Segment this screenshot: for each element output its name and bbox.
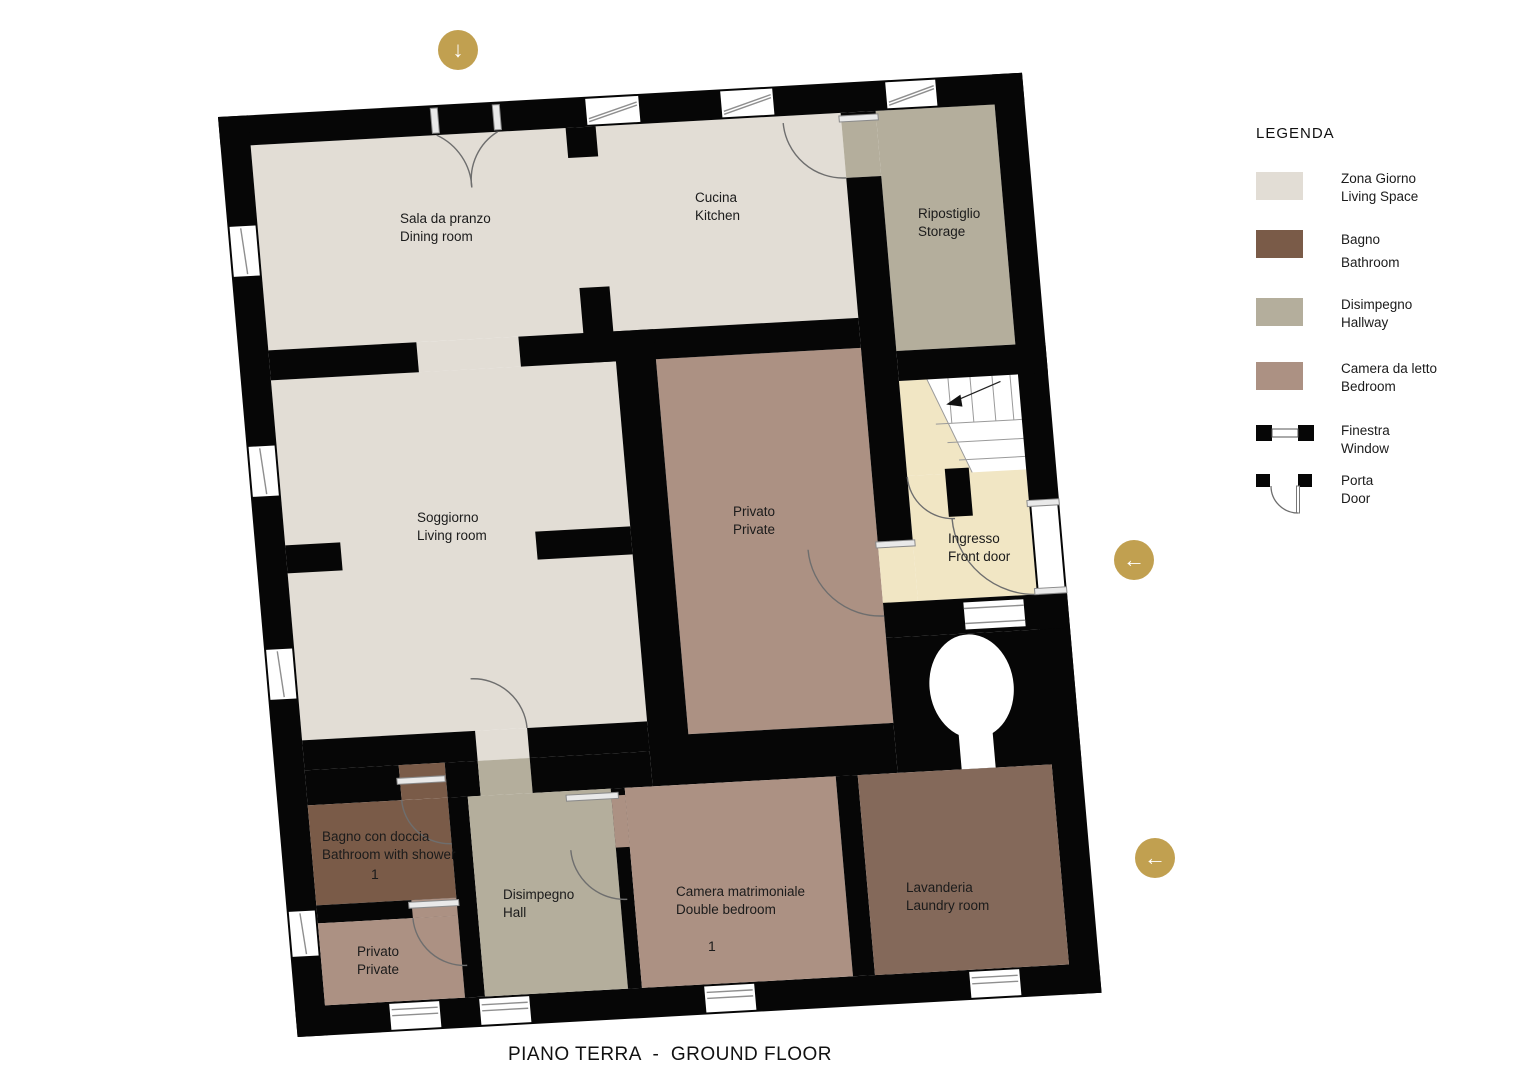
legend-item-door: PortaDoor bbox=[1256, 472, 1506, 521]
plan-title: PIANO TERRA - GROUND FLOOR bbox=[300, 1044, 1040, 1066]
room-label-private-small: PrivatoPrivate bbox=[357, 943, 399, 978]
legend-title: LEGENDA bbox=[1256, 125, 1506, 142]
nav-left-button-upper[interactable]: ← bbox=[1114, 540, 1154, 580]
room-label-living: SoggiornoLiving room bbox=[417, 509, 487, 544]
arrow-left-icon: ← bbox=[1123, 547, 1145, 573]
hallway-swatch bbox=[1256, 298, 1303, 326]
window-symbol-icon bbox=[1256, 424, 1314, 447]
room-dining-kitchen-floor bbox=[251, 113, 859, 350]
legend-item-window: FinestraWindow bbox=[1256, 422, 1506, 458]
room-private-center-floor bbox=[656, 348, 893, 734]
bathroom-count: 1 bbox=[371, 866, 379, 882]
room-label-entrance: IngressoFront door bbox=[948, 530, 1010, 565]
double-bedroom-count: 1 bbox=[708, 938, 716, 954]
room-label-storage: RipostiglioStorage bbox=[918, 205, 980, 240]
arrow-left-icon: ← bbox=[1144, 845, 1166, 871]
room-laundry-floor bbox=[858, 764, 1069, 975]
hall-corridor bbox=[478, 758, 533, 796]
legend-item-bathroom: BagnoBathroom bbox=[1256, 228, 1506, 274]
legend-item-living-space: Zona GiornoLiving Space bbox=[1256, 170, 1506, 206]
bedroom-swatch bbox=[1256, 362, 1303, 390]
nav-down-button[interactable]: ↓ bbox=[438, 30, 478, 70]
arrow-down-icon: ↓ bbox=[453, 37, 464, 63]
room-label-dining: Sala da pranzoDining room bbox=[400, 210, 491, 245]
living-space-swatch bbox=[1256, 172, 1303, 200]
room-label-bathroom: Bagno con docciaBathroom with shower bbox=[322, 828, 456, 863]
legend: LEGENDA Zona GiornoLiving Space BagnoBat… bbox=[1256, 125, 1506, 543]
room-label-kitchen: CucinaKitchen bbox=[695, 189, 740, 224]
room-label-private-center: PrivatoPrivate bbox=[733, 503, 775, 538]
nav-left-button-lower[interactable]: ← bbox=[1135, 838, 1175, 878]
living-door-opening bbox=[475, 728, 530, 761]
bathroom-swatch bbox=[1256, 230, 1303, 258]
legend-item-bedroom: Camera da lettoBedroom bbox=[1256, 360, 1506, 396]
room-label-laundry: LavanderiaLaundry room bbox=[906, 879, 989, 914]
room-label-double-bedroom: Camera matrimonialeDouble bedroom bbox=[676, 883, 805, 918]
kitchen-storage-opening bbox=[841, 116, 881, 178]
legend-item-hallway: DisimpegnoHallway bbox=[1256, 296, 1506, 332]
private-door-opening bbox=[878, 544, 919, 611]
dining-living-opening bbox=[416, 337, 521, 373]
door-symbol-icon bbox=[1256, 474, 1314, 521]
room-label-hall: DisimpegnoHall bbox=[503, 886, 574, 921]
